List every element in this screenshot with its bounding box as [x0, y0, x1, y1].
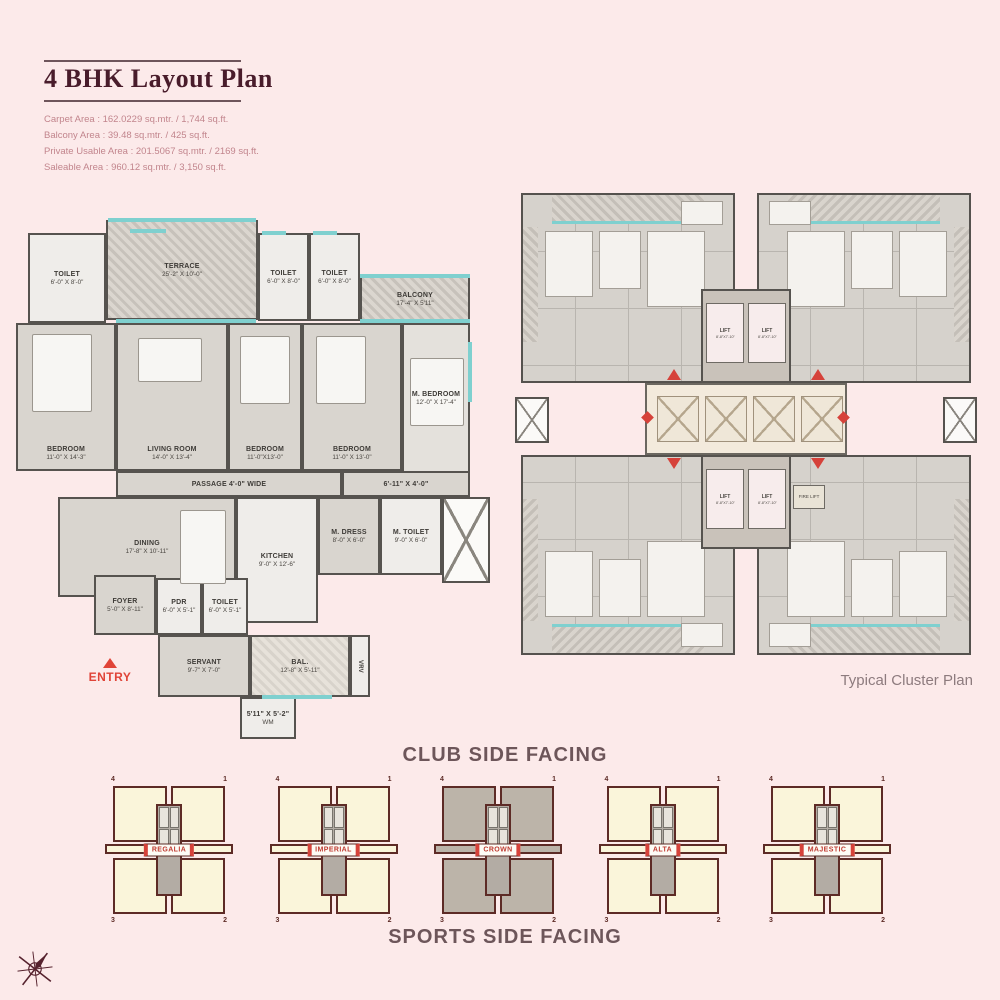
lift-label: LIFT [762, 328, 773, 334]
lift-lobby-cell [705, 396, 747, 442]
lift-bottom-1: LIFT 8'-8"X7'-10" [706, 469, 744, 529]
cluster-room [769, 623, 811, 647]
window-strip [313, 231, 337, 235]
core-top: LIFT 8'-8"X7'-10" LIFT 8'-8"X7'-10" [701, 289, 791, 383]
room-dim: 12'-0" X 17'-4" [416, 399, 456, 406]
void-xbox [442, 497, 490, 583]
tower-name: MAJESTIC [800, 844, 855, 857]
lift-lobby-cell [657, 396, 699, 442]
unit-number: 4 [769, 776, 773, 783]
room-name: 6'-11" X 4'-0" [383, 481, 428, 488]
room-toilet3: TOILET6'-0" X 8'-0" [309, 233, 360, 321]
entry-arrow-icon [811, 458, 825, 469]
lift-dim: 8'-8"X7'-10" [716, 500, 735, 505]
entry-arrow-icon [103, 658, 117, 668]
lift-dim: 8'-8"X7'-10" [716, 334, 735, 339]
lift-dim: 8'-8"X7'-10" [758, 500, 777, 505]
tower-keyplan-crown: 4132CROWN [432, 776, 564, 924]
lift-lobby-corridor [645, 383, 847, 455]
room-name: TOILET [212, 599, 238, 606]
cluster-room [681, 201, 723, 225]
room-name: KITCHEN [261, 553, 294, 560]
cluster-room [545, 231, 593, 297]
room-name: 5'11" X 5'-2" [247, 711, 290, 718]
unit-number: 4 [276, 776, 280, 783]
room-name: PDR [171, 599, 186, 606]
room-passage2: 6'-11" X 4'-0" [342, 471, 470, 497]
unit-number: 3 [276, 917, 280, 924]
unit-number: 2 [223, 917, 227, 924]
lift-label: LIFT [720, 494, 731, 500]
window-strip [360, 319, 470, 323]
room-dim: 9'-0" X 6'-0" [395, 537, 428, 544]
sports-side-facing-label: SPORTS SIDE FACING [330, 926, 680, 949]
unit-number: 2 [881, 917, 885, 924]
lift-bottom-2: LIFT 8'-8"X7'-10" [748, 469, 786, 529]
lift-top-2: LIFT 8'-8"X7'-10" [748, 303, 786, 363]
terrace-hatch [788, 624, 939, 653]
cluster-room [787, 541, 845, 617]
balcony-hatch [954, 499, 969, 621]
room-foyer: FOYER5'-0" X 8'-11" [94, 575, 156, 635]
room-dim: 11'-0" X 14'-3" [46, 454, 85, 461]
room-dim: 8'-0" X 6'-0" [333, 537, 366, 544]
room-mdress: M. DRESS8'-0" X 6'-0" [318, 497, 380, 575]
unit-number: 3 [605, 917, 609, 924]
area-details: Carpet Area : 162.0229 sq.mtr. / 1,744 s… [44, 112, 259, 176]
balcony-hatch [523, 227, 538, 342]
room-toilet2: TOILET6'-0" X 8'-0" [258, 233, 309, 321]
furniture [316, 336, 366, 404]
cluster-room [647, 231, 705, 307]
balcony-hatch [954, 227, 969, 342]
room-name: M. DRESS [331, 529, 366, 536]
tower-name: REGALIA [144, 844, 194, 857]
tower-keyplan-majestic: 4132MAJESTIC [761, 776, 893, 924]
unit-floor-plan: ENTRY TOILET6'-0" X 8'-0"TERRACE25'-2" X… [12, 212, 494, 734]
room-wm: 5'11" X 5'-2"WM [240, 697, 296, 739]
tower-keyplans-row: 4132REGALIA4132IMPERIAL4132CROWN4132ALTA… [103, 776, 893, 928]
room-passage: PASSAGE 4'-0" WIDE [116, 471, 342, 497]
room-name: LIVING ROOM [147, 446, 196, 453]
room-dim: 12'-8" X 5'-11" [280, 667, 319, 674]
cluster-plan: LIFT 8'-8"X7'-10" LIFT 8'-8"X7'-10" LIFT… [515, 185, 977, 663]
unit-number: 3 [769, 917, 773, 924]
area-line: Carpet Area : 162.0229 sq.mtr. / 1,744 s… [44, 112, 259, 128]
void-xbox [515, 397, 549, 443]
room-dim: 9'-0" X 12'-6" [259, 561, 295, 568]
lift-lobby-cell [753, 396, 795, 442]
window-strip [262, 231, 286, 235]
cluster-room [851, 559, 893, 617]
room-bal2: BAL.12'-8" X 5'-11" [250, 635, 350, 697]
room-vrv: VRV [350, 635, 370, 697]
room-dim: WM [262, 719, 273, 726]
unit-number: 1 [388, 776, 392, 783]
room-dim: 6'-0" X 8'-0" [318, 278, 351, 285]
tower-wing [675, 844, 727, 854]
room-servant: SERVANT9'-7" X 7'-0" [158, 635, 250, 697]
furniture [32, 334, 92, 412]
room-name: BEDROOM [47, 446, 85, 453]
cluster-room [599, 231, 641, 289]
fire-lift: FIRE LIFT [793, 485, 825, 509]
club-side-facing-label: CLUB SIDE FACING [330, 744, 680, 767]
entry-arrow-icon [667, 369, 681, 380]
room-toilet1: TOILET6'-0" X 8'-0" [28, 233, 106, 323]
window-strip [360, 274, 470, 278]
window-strip [262, 695, 332, 699]
unit-number: 1 [552, 776, 556, 783]
lift-dim: 8'-8"X7'-10" [758, 334, 777, 339]
tower-name: IMPERIAL [307, 844, 360, 857]
room-toilet4: TOILET6'-0" X 5'-1" [202, 578, 248, 635]
page-title: 4 BHK Layout Plan [44, 64, 273, 94]
room-name: TOILET [271, 270, 297, 277]
terrace-hatch [788, 195, 939, 224]
room-pdr: PDR6'-0" X 5'-1" [156, 578, 202, 635]
unit-number: 1 [881, 776, 885, 783]
cluster-caption: Typical Cluster Plan [840, 672, 973, 689]
page: 4 BHK Layout Plan Carpet Area : 162.0229… [0, 0, 1000, 1000]
tower-keyplan-imperial: 4132IMPERIAL [268, 776, 400, 924]
cluster-room [599, 559, 641, 617]
void-xbox [943, 397, 977, 443]
room-dim: 11'-0"X13'-0" [247, 454, 283, 461]
tower-name: ALTA [645, 844, 680, 857]
cluster-room [899, 551, 947, 617]
window-strip [468, 342, 472, 402]
room-dim: 17'-8" X 10'-11" [126, 548, 169, 555]
room-name: VRV [357, 660, 363, 673]
room-name: BALCONY [397, 292, 433, 299]
room-dim: 6'-0" X 5'-1" [163, 607, 196, 614]
entry-marker: ENTRY [62, 658, 158, 686]
furniture [180, 510, 226, 584]
core-bottom: LIFT 8'-8"X7'-10" LIFT 8'-8"X7'-10" [701, 455, 791, 549]
title-rule-bottom [44, 100, 241, 102]
room-dim: 6'-0" X 8'-0" [267, 278, 300, 285]
lift-lobby-cell [801, 396, 843, 442]
room-name: TOILET [322, 270, 348, 277]
room-name: DINING [134, 540, 160, 547]
cluster-room [681, 623, 723, 647]
unit-number: 4 [440, 776, 444, 783]
tower-name: CROWN [475, 844, 520, 857]
room-dim: 17'-4" X 5'11" [396, 300, 433, 307]
cluster-room [647, 541, 705, 617]
room-balcony: BALCONY17'-4" X 5'11" [360, 276, 470, 322]
unit-number: 1 [223, 776, 227, 783]
room-dim: 14'-0" X 13'-4" [152, 454, 192, 461]
room-name: M. TOILET [393, 529, 429, 536]
window-strip [108, 218, 256, 222]
unit-number: 1 [717, 776, 721, 783]
room-mtoilet: M. TOILET9'-0" X 6'-0" [380, 497, 442, 575]
furniture [138, 338, 202, 382]
tower-keyplan-regalia: 4132REGALIA [103, 776, 235, 924]
unit-number: 4 [111, 776, 115, 783]
entry-arrow-icon [811, 369, 825, 380]
room-name: TERRACE [164, 263, 199, 270]
area-line: Saleable Area : 960.12 sq.mtr. / 3,150 s… [44, 160, 259, 176]
room-dim: 6'-0" X 8'-0" [51, 279, 84, 286]
cluster-room [545, 551, 593, 617]
lift-top-1: LIFT 8'-8"X7'-10" [706, 303, 744, 363]
unit-number: 2 [717, 917, 721, 924]
room-name: M. BEDROOM [412, 391, 460, 398]
room-name: TOILET [54, 271, 80, 278]
room-dim: 9'-7" X 7'-0" [188, 667, 221, 674]
title-rule-top [44, 60, 241, 62]
tower-keyplan-alta: 4132ALTA [597, 776, 729, 924]
compass-icon [12, 946, 58, 992]
room-name: FOYER [112, 598, 137, 605]
room-terrace: TERRACE25'-2" X 10'-0" [106, 220, 258, 320]
balcony-hatch [523, 499, 538, 621]
room-dim: 6'-0" X 5'-1" [209, 607, 242, 614]
room-name: BEDROOM [333, 446, 371, 453]
unit-number: 2 [552, 917, 556, 924]
unit-number: 3 [440, 917, 444, 924]
lift-label: LIFT [762, 494, 773, 500]
unit-number: 2 [388, 917, 392, 924]
entry-label: ENTRY [89, 670, 132, 684]
cluster-room [769, 201, 811, 225]
room-dim: 5'-0" X 8'-11" [107, 606, 143, 613]
unit-number: 3 [111, 917, 115, 924]
room-name: BEDROOM [246, 446, 284, 453]
furniture [240, 336, 290, 404]
tower-wing [599, 844, 651, 854]
cluster-room [899, 231, 947, 297]
window-strip [130, 229, 166, 233]
room-name: PASSAGE 4'-0" WIDE [192, 481, 267, 488]
cluster-room [851, 231, 893, 289]
window-strip [116, 319, 256, 323]
room-name: BAL. [291, 659, 308, 666]
cluster-room [787, 231, 845, 307]
room-dim: 11'-0" X 13'-0" [332, 454, 371, 461]
area-line: Private Usable Area : 201.5067 sq.mtr. /… [44, 144, 259, 160]
fire-lift-label: FIRE LIFT [799, 495, 820, 500]
entry-arrow-icon [667, 458, 681, 469]
room-name: SERVANT [187, 659, 221, 666]
unit-number: 4 [605, 776, 609, 783]
room-dim: 25'-2" X 10'-0" [162, 271, 202, 278]
room-kitchen: KITCHEN9'-0" X 12'-6" [236, 497, 318, 623]
lift-label: LIFT [720, 328, 731, 334]
area-line: Balcony Area : 39.48 sq.mtr. / 425 sq.ft… [44, 128, 259, 144]
